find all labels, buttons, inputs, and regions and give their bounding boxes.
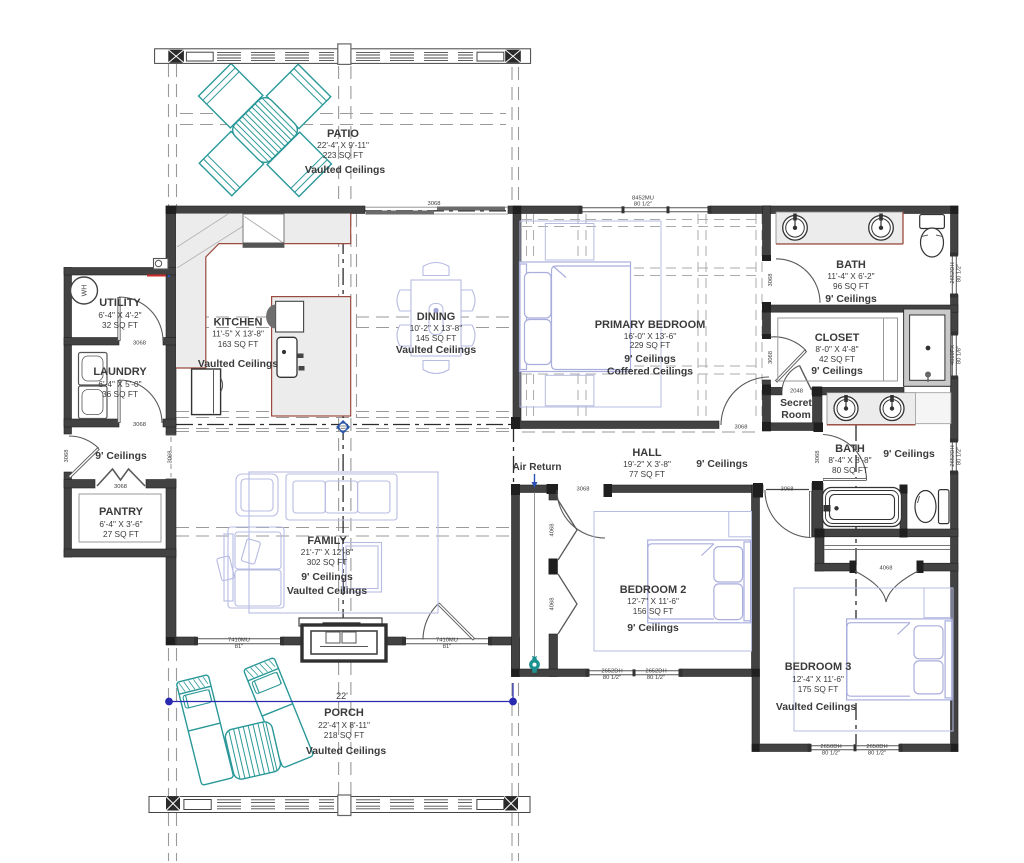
svg-text:2048: 2048: [790, 388, 803, 394]
svg-text:4068: 4068: [880, 566, 893, 572]
svg-text:19'-2" X 3'-8": 19'-2" X 3'-8": [623, 459, 671, 469]
svg-text:3068: 3068: [815, 451, 821, 464]
svg-text:2652DH: 2652DH: [645, 669, 666, 675]
svg-text:WH: WH: [82, 285, 89, 297]
svg-text:BEDROOM 2: BEDROOM 2: [620, 584, 687, 596]
svg-text:22'-4" X 9'-11": 22'-4" X 9'-11": [317, 140, 369, 150]
svg-text:9' Ceilings: 9' Ceilings: [825, 294, 877, 305]
svg-text:9' Ceilings: 9' Ceilings: [883, 449, 935, 460]
svg-text:36 SQ FT: 36 SQ FT: [102, 389, 138, 399]
svg-text:Vaulted Ceilings: Vaulted Ceilings: [198, 359, 278, 370]
svg-text:Air Return: Air Return: [513, 462, 562, 473]
svg-text:FAMILY: FAMILY: [307, 535, 347, 547]
svg-text:80 1/2": 80 1/2": [868, 751, 886, 757]
svg-text:3068: 3068: [168, 451, 174, 464]
svg-text:145 SQ FT: 145 SQ FT: [416, 333, 457, 343]
svg-text:Room: Room: [781, 410, 810, 421]
svg-text:11'-4" X 6'-2": 11'-4" X 6'-2": [827, 271, 874, 281]
svg-text:3068: 3068: [577, 487, 590, 493]
svg-text:81": 81": [443, 644, 452, 650]
svg-text:9' Ceilings: 9' Ceilings: [624, 354, 676, 365]
svg-text:Coffered Ceilings: Coffered Ceilings: [607, 367, 693, 378]
svg-text:229 SQ FT: 229 SQ FT: [630, 340, 671, 350]
svg-text:9' Ceilings: 9' Ceilings: [696, 459, 748, 470]
svg-text:80 1/2": 80 1/2": [647, 675, 665, 681]
svg-text:80 1/2": 80 1/2": [822, 751, 840, 757]
svg-text:UTILITY: UTILITY: [99, 297, 141, 309]
svg-text:223 SQ FT: 223 SQ FT: [323, 150, 364, 160]
svg-text:11'-5" X 13'-8": 11'-5" X 13'-8": [212, 329, 264, 339]
svg-text:80 SQ FT: 80 SQ FT: [832, 465, 868, 475]
svg-text:4068: 4068: [550, 598, 556, 611]
svg-text:80 1/2": 80 1/2": [957, 264, 963, 282]
svg-text:3068: 3068: [114, 484, 127, 490]
svg-text:81": 81": [235, 644, 244, 650]
svg-text:LAUNDRY: LAUNDRY: [93, 366, 147, 378]
svg-text:22': 22': [336, 691, 348, 701]
svg-text:3068: 3068: [64, 450, 70, 463]
svg-text:2650DH: 2650DH: [820, 744, 841, 750]
svg-text:8'-4" X 8'-8": 8'-4" X 8'-8": [828, 455, 871, 465]
svg-text:2652DH: 2652DH: [950, 262, 956, 283]
svg-text:PATIO: PATIO: [327, 128, 359, 140]
svg-text:163 SQ FT: 163 SQ FT: [218, 339, 259, 349]
svg-text:BATH: BATH: [835, 443, 865, 455]
svg-text:7410MU: 7410MU: [436, 638, 458, 644]
svg-text:PORCH: PORCH: [324, 707, 364, 719]
svg-text:PANTRY: PANTRY: [99, 506, 144, 518]
svg-text:77 SQ FT: 77 SQ FT: [629, 469, 665, 479]
svg-text:6'-4" X 5'-0": 6'-4" X 5'-0": [98, 379, 141, 389]
svg-text:9' Ceilings: 9' Ceilings: [811, 366, 863, 377]
svg-text:3068: 3068: [428, 201, 441, 207]
svg-text:12'-7" X 11'-6": 12'-7" X 11'-6": [627, 596, 679, 606]
svg-text:Vaulted Ceilings: Vaulted Ceilings: [287, 586, 367, 597]
svg-text:Secret: Secret: [780, 398, 812, 409]
svg-text:80 1/2": 80 1/2": [634, 202, 652, 208]
svg-text:PRIMARY BEDROOM: PRIMARY BEDROOM: [595, 319, 706, 331]
svg-text:Vaulted Ceilings: Vaulted Ceilings: [306, 746, 386, 757]
svg-text:2650DH: 2650DH: [866, 744, 887, 750]
svg-text:Vaulted Ceilings: Vaulted Ceilings: [305, 165, 385, 176]
svg-text:6'-4" X 3'-6": 6'-4" X 3'-6": [99, 519, 142, 529]
svg-text:3068: 3068: [768, 274, 774, 287]
svg-text:156 SQ FT: 156 SQ FT: [633, 606, 674, 616]
svg-text:7410MU: 7410MU: [228, 638, 250, 644]
svg-text:27 SQ FT: 27 SQ FT: [103, 529, 139, 539]
svg-text:10'-2" X 13'-8": 10'-2" X 13'-8": [410, 323, 462, 333]
svg-text:3068: 3068: [133, 341, 146, 347]
svg-text:DINING: DINING: [417, 311, 456, 323]
svg-text:2652DH: 2652DH: [950, 445, 956, 466]
svg-text:HALL: HALL: [632, 447, 662, 459]
svg-text:BEDROOM 3: BEDROOM 3: [785, 661, 852, 673]
svg-text:BATH: BATH: [836, 259, 866, 271]
svg-text:32 SQ FT: 32 SQ FT: [102, 320, 138, 330]
svg-text:Vaulted Ceilings: Vaulted Ceilings: [776, 702, 856, 713]
svg-text:22'-4" X 8'-11": 22'-4" X 8'-11": [318, 720, 370, 730]
svg-text:80 1/8": 80 1/8": [957, 346, 963, 364]
svg-text:CLOSET: CLOSET: [815, 332, 860, 344]
svg-text:4068: 4068: [550, 524, 556, 537]
svg-text:80 1/2": 80 1/2": [957, 447, 963, 465]
svg-text:Vaulted Ceilings: Vaulted Ceilings: [396, 345, 476, 356]
svg-text:2652DH: 2652DH: [601, 669, 622, 675]
svg-text:21'-7" X 12'-8": 21'-7" X 12'-8": [301, 547, 353, 557]
svg-text:9' Ceilings: 9' Ceilings: [301, 572, 353, 583]
svg-text:3068: 3068: [781, 487, 794, 493]
svg-text:3068: 3068: [735, 424, 748, 430]
svg-text:3068: 3068: [768, 351, 774, 364]
svg-text:175 SQ FT: 175 SQ FT: [798, 684, 839, 694]
svg-text:42 SQ FT: 42 SQ FT: [819, 354, 855, 364]
svg-text:302 SQ FT: 302 SQ FT: [307, 557, 348, 567]
svg-text:218 SQ FT: 218 SQ FT: [324, 730, 365, 740]
svg-text:KITCHEN: KITCHEN: [214, 317, 263, 329]
svg-text:3068: 3068: [133, 422, 146, 428]
svg-text:6'-4" X 4'-2": 6'-4" X 4'-2": [98, 310, 141, 320]
svg-text:4010FX: 4010FX: [950, 345, 956, 365]
svg-text:9' Ceilings: 9' Ceilings: [95, 451, 147, 462]
svg-text:96 SQ FT: 96 SQ FT: [833, 281, 869, 291]
svg-text:80 1/2": 80 1/2": [603, 675, 621, 681]
svg-text:12'-4" X 11'-6": 12'-4" X 11'-6": [792, 674, 844, 684]
svg-text:8'-0" X 4'-8": 8'-0" X 4'-8": [815, 344, 858, 354]
svg-text:9' Ceilings: 9' Ceilings: [627, 623, 679, 634]
